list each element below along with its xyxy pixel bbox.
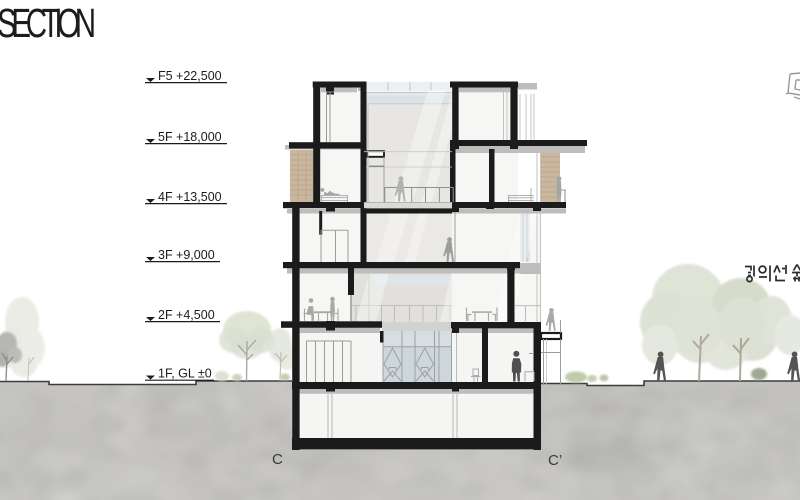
svg-text:F5 +22,500: F5 +22,500 bbox=[158, 69, 222, 83]
svg-text:5F +18,000: 5F +18,000 bbox=[158, 130, 222, 144]
svg-text:SECTION: SECTION bbox=[0, 0, 96, 46]
svg-text:3F +9,000: 3F +9,000 bbox=[158, 248, 215, 262]
svg-text:C: C bbox=[272, 451, 283, 468]
svg-text:1F, GL ±0: 1F, GL ±0 bbox=[158, 367, 212, 381]
svg-text:4F +13,500: 4F +13,500 bbox=[158, 190, 222, 204]
svg-text:C’: C’ bbox=[548, 452, 562, 469]
svg-text:2F +4,500: 2F +4,500 bbox=[158, 308, 215, 322]
